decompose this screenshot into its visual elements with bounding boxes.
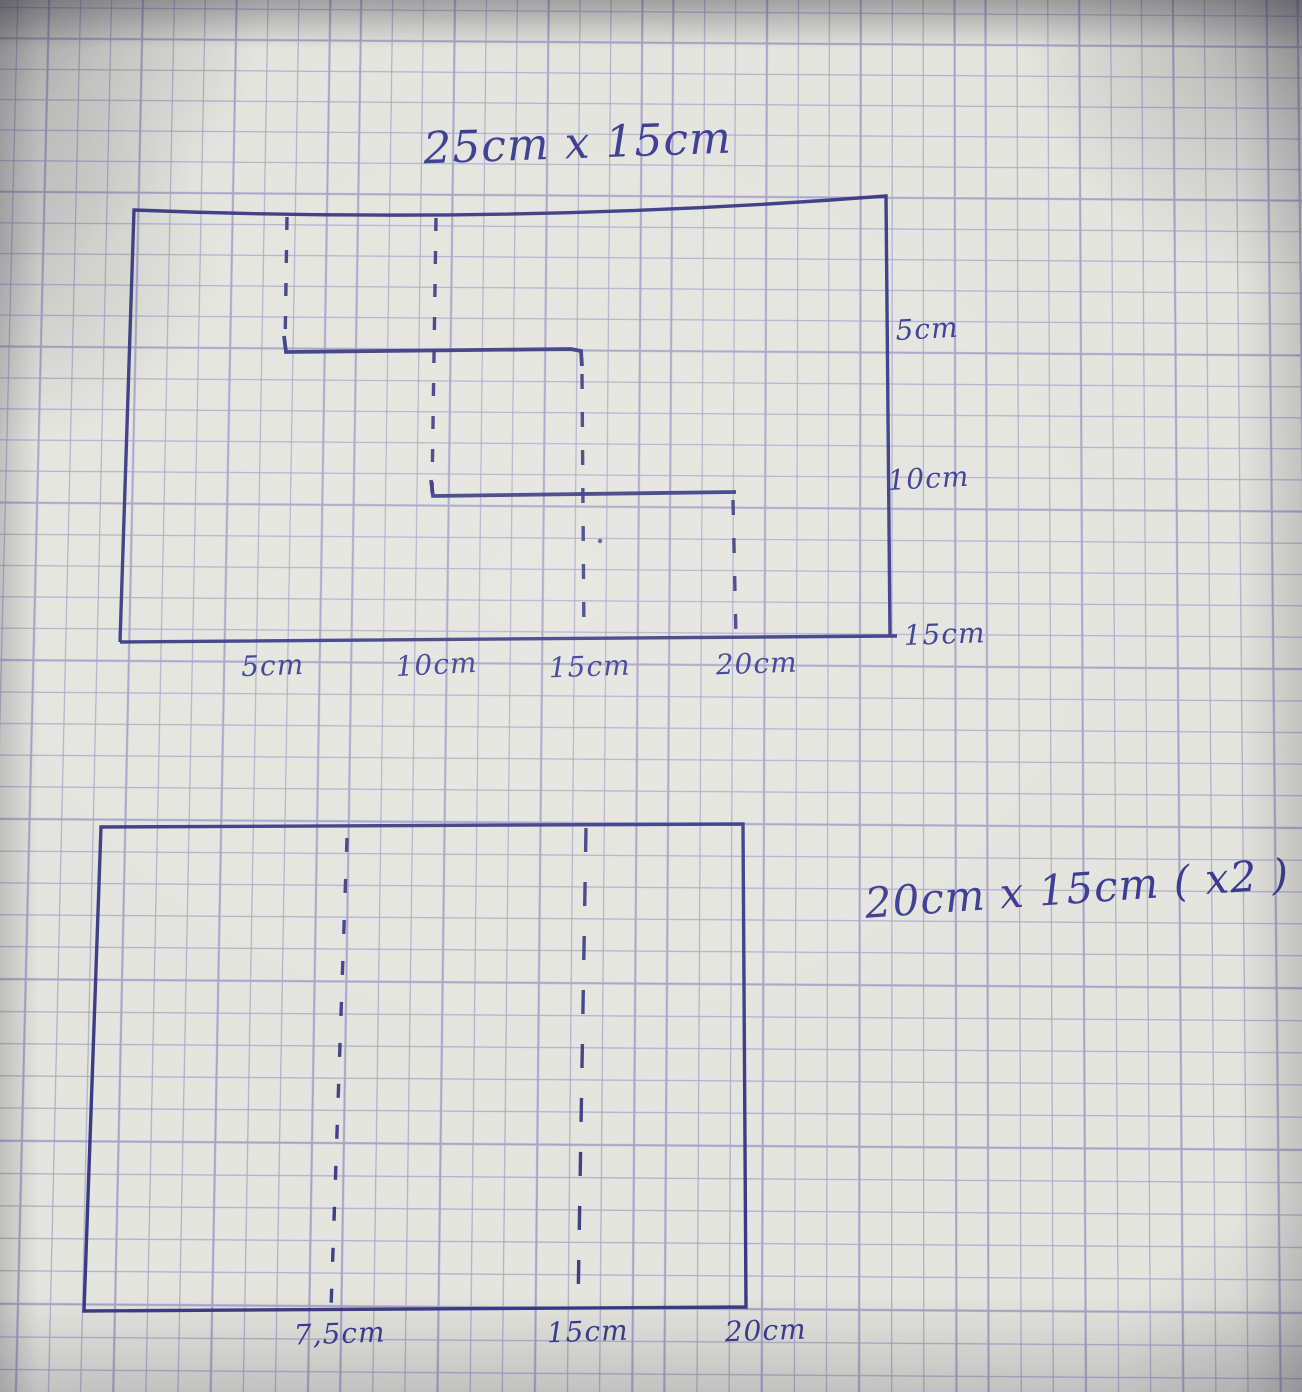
outline-25x15 [120,196,897,642]
label-bottom-5cm: 5cm [241,648,305,683]
dashed-line-7-5cm [331,838,347,1309]
dashed-line-15cm-bottom [578,828,586,1306]
sketch-25x15-title: 25cm x 15cm [421,113,732,175]
outline-20x15 [84,824,746,1311]
label-bottom-15cm2: 15cm [546,1314,629,1350]
label-bottom-15cm: 15cm [548,649,631,685]
sketch-20x15-title: 20cm x 15cm ( x2 ) [862,849,1291,928]
label-bottom-10cm: 10cm [395,646,478,683]
label-right-5cm: 5cm [895,311,960,347]
graph-paper-photo: 25cm x 15cm 5cm 10cm 15cm 5cm 10cm 15cm … [0,0,1302,1392]
sketch-25x15: 25cm x 15cm 5cm 10cm 15cm 5cm 10cm 15cm … [120,113,986,685]
label-bottom-20cm: 20cm [714,646,798,682]
dashed-line-10cm [432,218,436,493]
dashed-line-5cm [285,217,287,349]
dashed-line-15cm [582,374,584,640]
label-bottom-20cm2: 20cm [723,1313,807,1349]
pen-speck [598,539,602,543]
dashed-line-20cm [733,500,736,639]
label-right-15cm: 15cm [903,616,986,652]
label-right-10cm: 10cm [887,460,970,497]
label-bottom-7-5cm: 7,5cm [293,1315,386,1351]
sketch-20x15: 20cm x 15cm ( x2 ) 7,5cm 15cm 20cm [84,824,1291,1352]
pen-drawing: 25cm x 15cm 5cm 10cm 15cm 5cm 10cm 15cm … [0,0,1302,1392]
